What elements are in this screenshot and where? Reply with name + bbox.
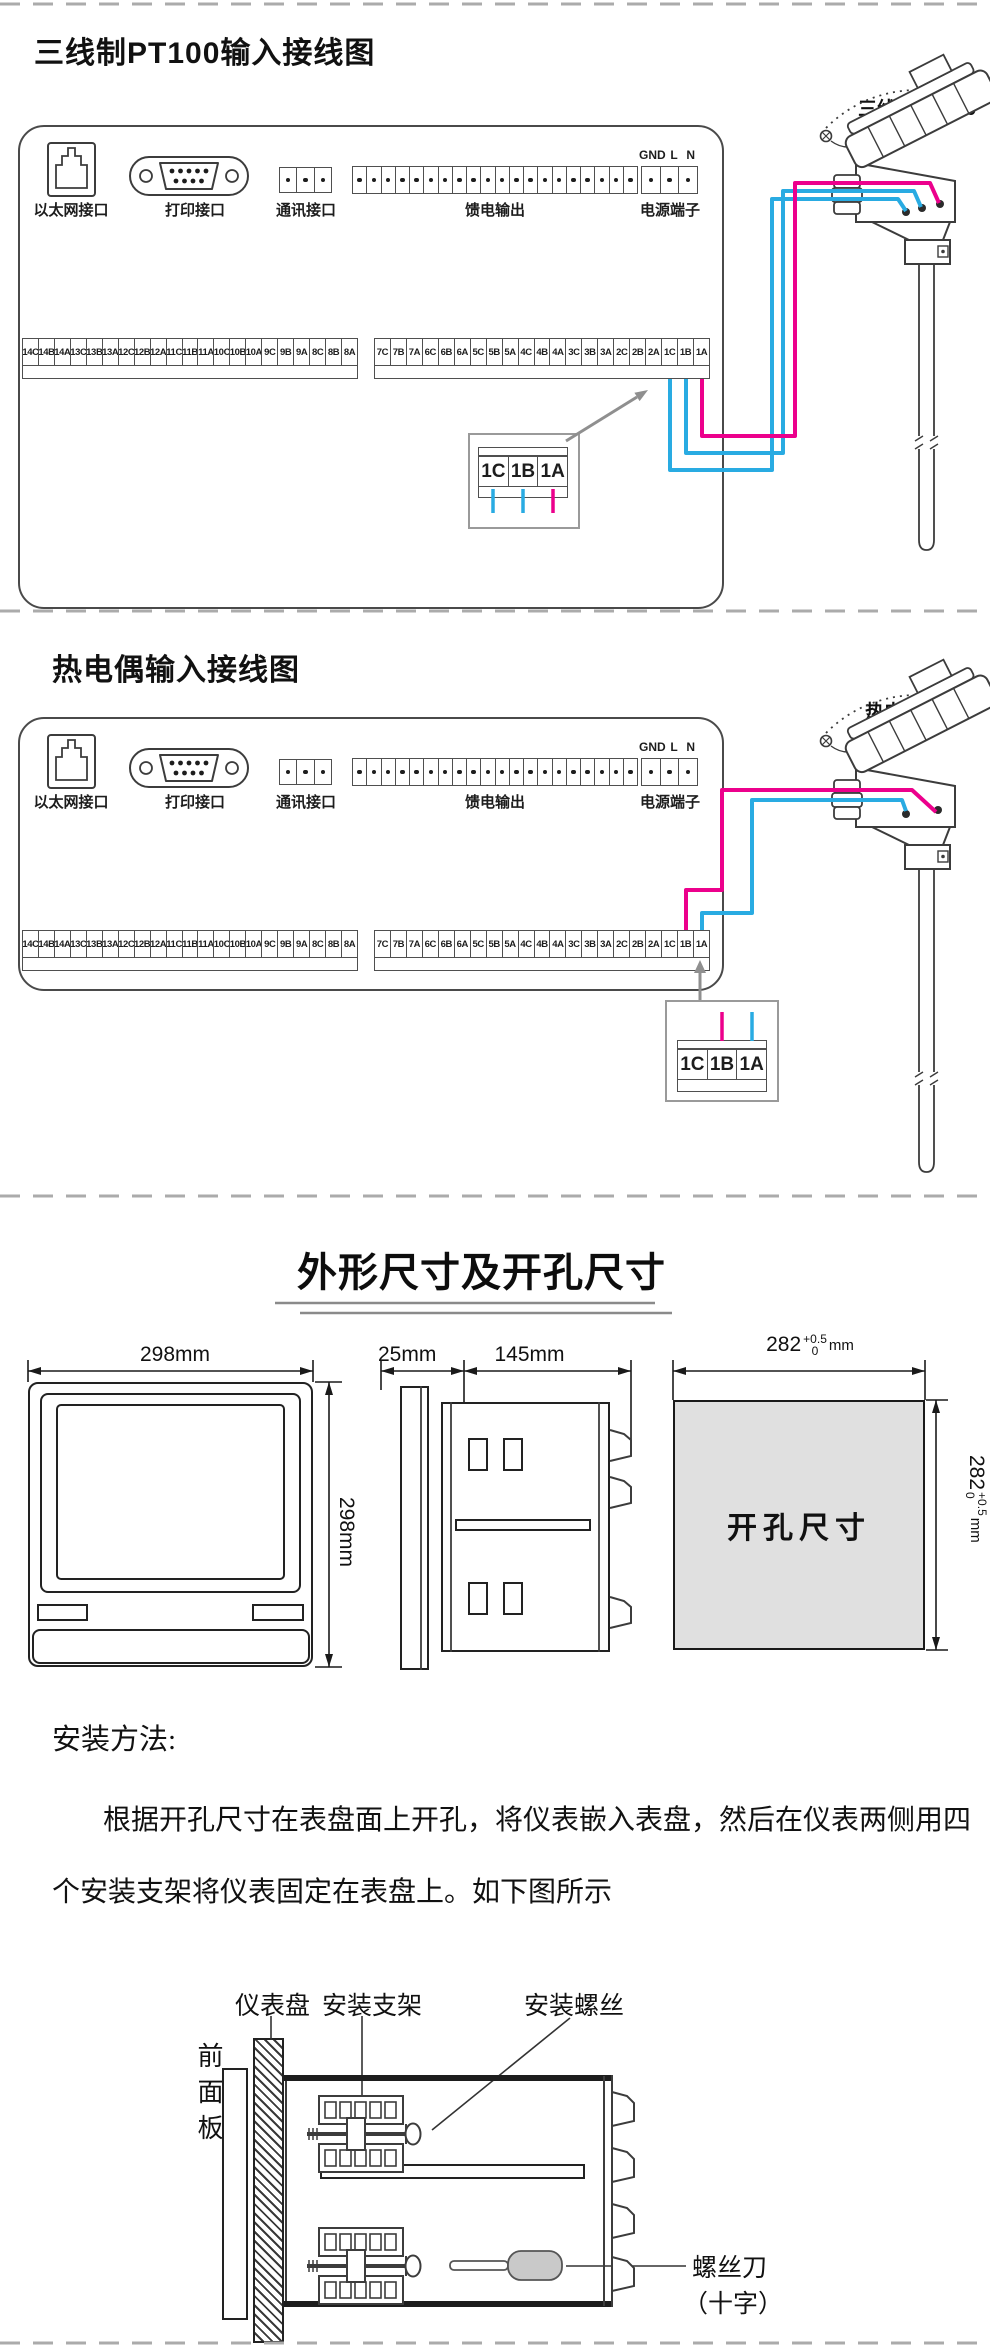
terminal-cell: 4C	[519, 339, 535, 365]
terminal-cell: 14B	[39, 339, 55, 365]
section2-title: 热电偶输入接线图	[52, 645, 300, 689]
terminal-cell: 1B	[509, 457, 539, 486]
feed-output-label: 馈电输出	[463, 791, 527, 812]
mounting-bracket-top	[307, 2096, 421, 2172]
terminal-cell: 5A	[503, 339, 519, 365]
terminal-cell: 4B	[535, 339, 551, 365]
dim-unit: mm	[968, 1518, 985, 1543]
terminal-cell: 14A	[55, 339, 71, 365]
terminal-dot-cell	[524, 167, 538, 193]
terminal-cell: 13B	[87, 931, 103, 957]
terminal-cell: 4C	[519, 931, 535, 957]
terminal-cell: 1B	[678, 931, 694, 957]
terminal-dot-cell	[297, 760, 314, 784]
terminal-dot-cell	[581, 759, 595, 785]
terminal-cell: 11A	[198, 339, 214, 365]
power-pin-labels: GND L N	[639, 148, 699, 162]
cutout-label: 开孔尺寸	[727, 1503, 871, 1547]
mini-terminal-strip-tc: 1C1B1A	[677, 1049, 767, 1080]
terminal-cell: 1C	[479, 457, 509, 486]
front-view-button-right	[252, 1604, 304, 1621]
power-terminal-block	[641, 758, 698, 786]
mini-strip-rim	[478, 447, 568, 456]
tol-lower: 0	[803, 1345, 827, 1357]
terminal-cell: 7A	[407, 931, 423, 957]
terminal-cell: 14C	[23, 931, 39, 957]
terminal-cell: 1A	[694, 339, 709, 365]
front-view-bottom-bar	[32, 1629, 310, 1664]
mini-strip-rim	[478, 487, 568, 498]
instrument-panel-hatched-plate	[253, 2038, 284, 2343]
terminal-dot-cell	[467, 759, 481, 785]
ethernet-port-label: 以太网接口	[31, 199, 111, 220]
terminal-cell: 4A	[550, 339, 566, 365]
label-instrument-panel: 仪表盘	[235, 1986, 310, 2022]
section3-title: 外形尺寸及开孔尺寸	[297, 1240, 666, 1298]
mounting-bracket-bottom	[307, 2228, 421, 2304]
terminal-dot-cell	[624, 167, 637, 193]
terminal-dot-cell	[610, 167, 624, 193]
terminal-cell: 11B	[183, 931, 199, 957]
terminal-cell: 12A	[151, 339, 167, 365]
printer-port-label: 打印接口	[163, 791, 227, 812]
terminal-dot-cell	[610, 759, 624, 785]
terminal-cell: 6B	[439, 339, 455, 365]
terminal-cell: 8A	[342, 339, 357, 365]
terminal-cell: 12B	[135, 339, 151, 365]
terminal-cell: 3A	[598, 931, 614, 957]
manual-page: 三线制PT100输入接线图 以太网接口 打印接口 通讯接口 馈电输出 电源端子 …	[0, 0, 990, 2349]
dim-value: 282	[964, 1455, 988, 1490]
power-terminal-block	[641, 166, 698, 194]
terminal-cell: 14A	[55, 931, 71, 957]
terminal-cell: 3B	[582, 931, 598, 957]
screwdriver-icon	[450, 2251, 562, 2280]
terminal-dot-cell	[297, 168, 314, 192]
pin-l: L	[666, 148, 683, 162]
terminal-dot-cell	[481, 759, 495, 785]
terminal-dot-cell	[439, 759, 453, 785]
terminal-dot-cell	[280, 760, 297, 784]
banner-underline	[275, 1303, 672, 1313]
feed-output-terminal-strip	[352, 758, 638, 786]
install-paragraph-line1: 根据开孔尺寸在表盘面上开孔，将仪表嵌入表盘，然后在仪表两侧用四	[103, 1798, 971, 1838]
terminal-cell: 1C	[662, 931, 678, 957]
terminal-cell: 7C	[375, 339, 391, 365]
terminal-dot-cell	[410, 167, 424, 193]
strip-rim	[22, 366, 358, 379]
terminal-dot-cell	[679, 167, 697, 193]
ethernet-port-label: 以太网接口	[31, 791, 111, 812]
terminal-dot-cell	[353, 759, 367, 785]
terminal-cell: 7C	[375, 931, 391, 957]
install-case	[284, 2075, 634, 2307]
tol-upper: +0.5	[976, 1492, 988, 1516]
comm-port-label: 通讯接口	[274, 791, 338, 812]
section1-title: 三线制PT100输入接线图	[34, 28, 375, 72]
tc-sensor-illustration	[821, 646, 990, 1172]
terminal-cell: 10C	[214, 339, 230, 365]
terminal-dot-cell	[567, 759, 581, 785]
dim-tolerance: +0.5 0	[803, 1333, 827, 1357]
terminal-cell: 7B	[391, 931, 407, 957]
terminal-cell: 9B	[278, 339, 294, 365]
terminal-cell: 6B	[439, 931, 455, 957]
strip-rim	[374, 958, 710, 971]
terminal-cell: 8B	[326, 931, 342, 957]
front-panel-plate	[222, 2068, 248, 2320]
comm-terminal-block	[279, 759, 332, 785]
terminal-cell: 10C	[214, 931, 230, 957]
terminal-dot-cell	[439, 167, 453, 193]
terminal-cell: 10A	[246, 339, 262, 365]
terminal-dot-cell	[642, 759, 661, 785]
terminal-dot-cell	[642, 167, 661, 193]
terminal-dot-cell	[280, 168, 297, 192]
terminal-dot-cell	[382, 759, 396, 785]
terminal-cell: 9C	[262, 339, 278, 365]
terminal-dot-cell	[567, 167, 581, 193]
terminal-dot-cell	[524, 759, 538, 785]
terminal-cell: 12B	[135, 931, 151, 957]
label-screwdriver-cross: （十字）	[683, 2284, 783, 2320]
terminal-dot-cell	[453, 167, 467, 193]
terminal-cell: 1B	[678, 339, 694, 365]
side-view-vent	[468, 1438, 488, 1471]
terminal-dot-cell	[538, 759, 552, 785]
input-terminal-strip-left: 14C14B14A13C13B13A12C12B12A11C11B11A10C1…	[22, 930, 358, 958]
terminal-dot-cell	[595, 759, 609, 785]
terminal-dot-cell	[661, 167, 680, 193]
terminal-cell: 4A	[550, 931, 566, 957]
terminal-dot-cell	[424, 759, 438, 785]
terminal-cell: 9A	[294, 931, 310, 957]
dim-cutout-height: 282 +0.5 0 mm	[964, 1455, 988, 1543]
terminal-cell: 1C	[662, 339, 678, 365]
pt100-sensor-label: 三线制 PT100	[858, 94, 976, 121]
terminal-dot-cell	[595, 167, 609, 193]
terminal-cell: 2B	[630, 931, 646, 957]
power-pin-labels: GND L N	[639, 740, 699, 754]
dim-front-height: 298mm	[334, 1497, 358, 1567]
input-terminal-strip-left: 14C14B14A13C13B13A12C12B12A11C11B11A10C1…	[22, 338, 358, 366]
terminal-cell: 3C	[566, 931, 582, 957]
strip-rim	[22, 958, 358, 971]
comm-port-label: 通讯接口	[274, 199, 338, 220]
terminal-cell: 2A	[646, 931, 662, 957]
terminal-cell: 9C	[262, 931, 278, 957]
terminal-cell: 8C	[310, 339, 326, 365]
side-view-vent	[468, 1582, 488, 1615]
terminal-cell: 13A	[103, 931, 119, 957]
mini-strip-rim	[677, 1040, 767, 1049]
terminal-dot-cell	[510, 759, 524, 785]
dim-side-depth: 145mm	[492, 1343, 567, 1367]
terminal-cell: 3A	[598, 339, 614, 365]
cutout-square: 开孔尺寸	[673, 1400, 925, 1650]
input-terminal-strip-right: 7C7B7A6C6B6A5C5B5A4C4B4A3C3B3A2C2B2A1C1B…	[374, 338, 710, 366]
terminal-cell: 1A	[737, 1050, 766, 1079]
terminal-dot-cell	[315, 168, 331, 192]
terminal-dot-cell	[353, 167, 367, 193]
pin-gnd: GND	[639, 148, 666, 162]
terminal-cell: 5B	[487, 931, 503, 957]
terminal-dot-cell	[382, 167, 396, 193]
leader-lines	[271, 2016, 686, 2266]
terminal-cell: 6A	[455, 339, 471, 365]
terminal-cell: 10B	[230, 339, 246, 365]
label-mounting-bracket: 安装支架	[322, 1986, 422, 2022]
terminal-cell: 6A	[455, 931, 471, 957]
terminal-cell: 12C	[119, 339, 135, 365]
printer-port-label: 打印接口	[163, 199, 227, 220]
terminal-dot-cell	[481, 167, 495, 193]
input-terminal-strip-right: 7C7B7A6C6B6A5C5B5A4C4B4A3C3B3A2C2B2A1C1B…	[374, 930, 710, 958]
dim-unit: mm	[829, 1337, 854, 1354]
terminal-dot-cell	[624, 759, 637, 785]
terminal-cell: 14B	[39, 931, 55, 957]
tc-sensor-label: 热电偶 TC	[865, 697, 953, 724]
terminal-dot-cell	[679, 759, 697, 785]
terminal-cell: 4B	[535, 931, 551, 957]
dim-tolerance: +0.5 0	[964, 1492, 988, 1516]
terminal-cell: 13A	[103, 339, 119, 365]
terminal-cell: 13B	[87, 339, 103, 365]
power-terminal-label: 电源端子	[638, 791, 702, 812]
terminal-cell: 12C	[119, 931, 135, 957]
install-paragraph-line2: 个安装支架将仪表固定在表盘上。如下图所示	[52, 1870, 612, 1910]
terminal-cell: 11A	[198, 931, 214, 957]
terminal-cell: 14C	[23, 339, 39, 365]
terminal-cell: 9B	[278, 931, 294, 957]
terminal-cell: 7A	[407, 339, 423, 365]
terminal-cell: 10A	[246, 931, 262, 957]
terminal-dot-cell	[453, 759, 467, 785]
terminal-cell: 8A	[342, 931, 357, 957]
terminal-cell: 2C	[614, 339, 630, 365]
terminal-dot-cell	[367, 167, 381, 193]
terminal-cell: 3C	[566, 339, 582, 365]
terminal-dot-cell	[315, 760, 331, 784]
terminal-cell: 6C	[423, 339, 439, 365]
terminal-cell: 2B	[630, 339, 646, 365]
mini-strip-rim	[677, 1080, 767, 1092]
terminal-cell: 6C	[423, 931, 439, 957]
terminal-cell: 1C	[678, 1050, 708, 1079]
dim-side-bezel: 25mm	[378, 1343, 428, 1367]
power-terminal-label: 电源端子	[638, 199, 702, 220]
terminal-dot-cell	[496, 167, 510, 193]
feed-output-label: 馈电输出	[463, 199, 527, 220]
terminal-dot-cell	[661, 759, 680, 785]
strip-rim	[374, 366, 710, 379]
terminal-cell: 10B	[230, 931, 246, 957]
terminal-cell: 11C	[167, 931, 183, 957]
side-view-vent	[503, 1582, 523, 1615]
side-view-bezel	[400, 1386, 429, 1670]
terminal-dot-cell	[553, 759, 567, 785]
terminal-cell: 5B	[487, 339, 503, 365]
dim-cutout-width: 282 +0.5 0 mm	[740, 1333, 880, 1357]
terminal-cell: 1B	[708, 1050, 738, 1079]
terminal-cell: 2A	[646, 339, 662, 365]
label-mounting-screw: 安装螺丝	[524, 1986, 624, 2022]
terminal-cell: 2C	[614, 931, 630, 957]
dim-front-width: 298mm	[140, 1343, 200, 1367]
pin-n: N	[682, 740, 699, 754]
pin-n: N	[682, 148, 699, 162]
terminal-dot-cell	[396, 167, 410, 193]
terminal-cell: 12A	[151, 931, 167, 957]
terminal-cell: 1A	[694, 931, 709, 957]
feed-output-terminal-strip	[352, 166, 638, 194]
pin-gnd: GND	[639, 740, 666, 754]
terminal-cell: 11B	[183, 339, 199, 365]
comm-terminal-block	[279, 167, 332, 193]
terminal-cell: 1A	[538, 457, 567, 486]
pin-l: L	[666, 740, 683, 754]
side-view-slot	[455, 1519, 591, 1531]
terminal-dot-cell	[396, 759, 410, 785]
terminal-cell: 5C	[471, 931, 487, 957]
terminal-dot-cell	[410, 759, 424, 785]
terminal-dot-cell	[538, 167, 552, 193]
mini-terminal-strip-pt100: 1C1B1A	[478, 456, 568, 487]
terminal-cell: 11C	[167, 339, 183, 365]
terminal-cell: 5A	[503, 931, 519, 957]
terminal-cell: 9A	[294, 339, 310, 365]
terminal-cell: 8C	[310, 931, 326, 957]
terminal-dot-cell	[424, 167, 438, 193]
terminal-cell: 8B	[326, 339, 342, 365]
terminal-dot-cell	[496, 759, 510, 785]
label-screwdriver: 螺丝刀	[692, 2248, 767, 2284]
side-view-vent	[503, 1438, 523, 1471]
terminal-dot-cell	[467, 167, 481, 193]
dim-value: 282	[766, 1333, 801, 1357]
terminal-cell: 13C	[71, 339, 87, 365]
front-view-screen	[56, 1404, 285, 1580]
terminal-cell: 5C	[471, 339, 487, 365]
terminal-dot-cell	[553, 167, 567, 193]
terminal-dot-cell	[367, 759, 381, 785]
terminal-dot-cell	[510, 167, 524, 193]
case-slot	[320, 2164, 585, 2179]
tol-lower: 0	[964, 1492, 976, 1516]
terminal-dot-cell	[581, 167, 595, 193]
install-heading: 安装方法:	[52, 1716, 176, 1758]
front-view-button-left	[37, 1604, 88, 1621]
terminal-cell: 7B	[391, 339, 407, 365]
terminal-cell: 3B	[582, 339, 598, 365]
terminal-cell: 13C	[71, 931, 87, 957]
